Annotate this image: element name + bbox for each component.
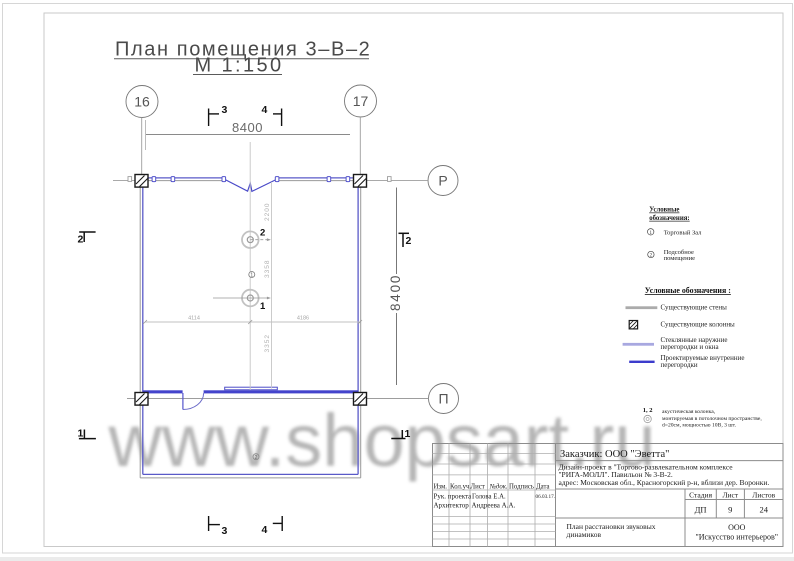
svg-text:обозначения:: обозначения: [649, 215, 690, 222]
svg-text:Андреева А.А.: Андреева А.А. [472, 502, 516, 510]
svg-text:Дата: Дата [536, 484, 550, 491]
svg-text:перегородки: перегородки [661, 361, 698, 369]
svg-text:9: 9 [728, 505, 732, 515]
svg-text:3358: 3358 [264, 260, 271, 278]
svg-text:Условные: Условные [649, 207, 679, 214]
svg-text:динамиков: динамиков [567, 530, 602, 539]
svg-text:№док.: №док. [489, 484, 508, 491]
svg-text:1: 1 [649, 231, 652, 236]
svg-text:2: 2 [260, 228, 265, 239]
svg-text:ООО: ООО [728, 523, 746, 532]
svg-text:"Искусство интерьеров": "Искусство интерьеров" [696, 533, 779, 542]
svg-text:П: П [438, 391, 448, 407]
svg-text:3352: 3352 [264, 334, 271, 352]
svg-text:Существующие колонны: Существующие колонны [661, 321, 736, 329]
svg-text:3: 3 [222, 104, 228, 116]
svg-text:ДП: ДП [695, 505, 707, 515]
svg-text:Листов: Листов [752, 491, 775, 500]
svg-text:2: 2 [406, 235, 412, 247]
svg-text:Голова Е.А.: Голова Е.А. [472, 494, 506, 501]
svg-text:1, 2: 1, 2 [643, 407, 653, 414]
svg-text:17: 17 [353, 93, 369, 109]
svg-text:Стадия: Стадия [689, 491, 712, 500]
svg-text:1: 1 [78, 427, 84, 439]
svg-text:8400: 8400 [388, 274, 403, 311]
svg-text:Условные обозначения :: Условные обозначения : [645, 286, 731, 295]
svg-text:помещение: помещение [664, 255, 695, 262]
svg-text:1: 1 [250, 273, 253, 279]
svg-text:3: 3 [222, 525, 228, 537]
svg-text:М 1:150: М 1:150 [195, 54, 284, 76]
svg-text:акустическая колонка,: акустическая колонка, [662, 409, 716, 415]
svg-text:Лист: Лист [471, 484, 485, 491]
svg-text:Р: Р [438, 173, 447, 189]
svg-text:Заказчик: ООО "Эветта": Заказчик: ООО "Эветта" [560, 449, 669, 460]
svg-text:4186: 4186 [297, 316, 309, 322]
svg-text:8400: 8400 [232, 120, 263, 135]
svg-text:d=20см, мощностью 10В, 3 шт.: d=20см, мощностью 10В, 3 шт. [662, 423, 737, 429]
svg-text:монтируемая в потолочном прост: монтируемая в потолочном пространстве, [662, 416, 762, 422]
svg-text:1: 1 [405, 428, 411, 440]
svg-text:Торговый Зал: Торговый Зал [664, 229, 702, 236]
svg-text:24: 24 [759, 505, 768, 515]
svg-text:Изм.: Изм. [434, 484, 448, 491]
svg-text:перегородки и окна: перегородки и окна [661, 343, 720, 351]
svg-text:16: 16 [134, 94, 150, 110]
svg-text:2: 2 [255, 455, 258, 461]
svg-text:Подпись: Подпись [509, 484, 534, 491]
svg-text:Существующие стены: Существующие стены [661, 303, 728, 311]
svg-text:Кол.уч.: Кол.уч. [450, 484, 471, 491]
svg-text:Рук. проекта: Рук. проекта [434, 493, 473, 501]
svg-text:2200: 2200 [264, 203, 271, 221]
svg-text:4: 4 [262, 104, 268, 116]
svg-text:Архитектор: Архитектор [434, 502, 470, 510]
svg-text:1: 1 [260, 301, 266, 312]
svg-text:Лист: Лист [722, 491, 738, 500]
svg-text:4: 4 [262, 524, 268, 536]
svg-text:06.03.17.: 06.03.17. [536, 494, 555, 500]
svg-text:адрес: Московская обл., Красно: адрес: Московская обл., Красногорский р-… [559, 478, 770, 487]
svg-text:2: 2 [650, 254, 653, 259]
svg-text:4114: 4114 [188, 316, 200, 322]
svg-text:2: 2 [78, 234, 84, 246]
